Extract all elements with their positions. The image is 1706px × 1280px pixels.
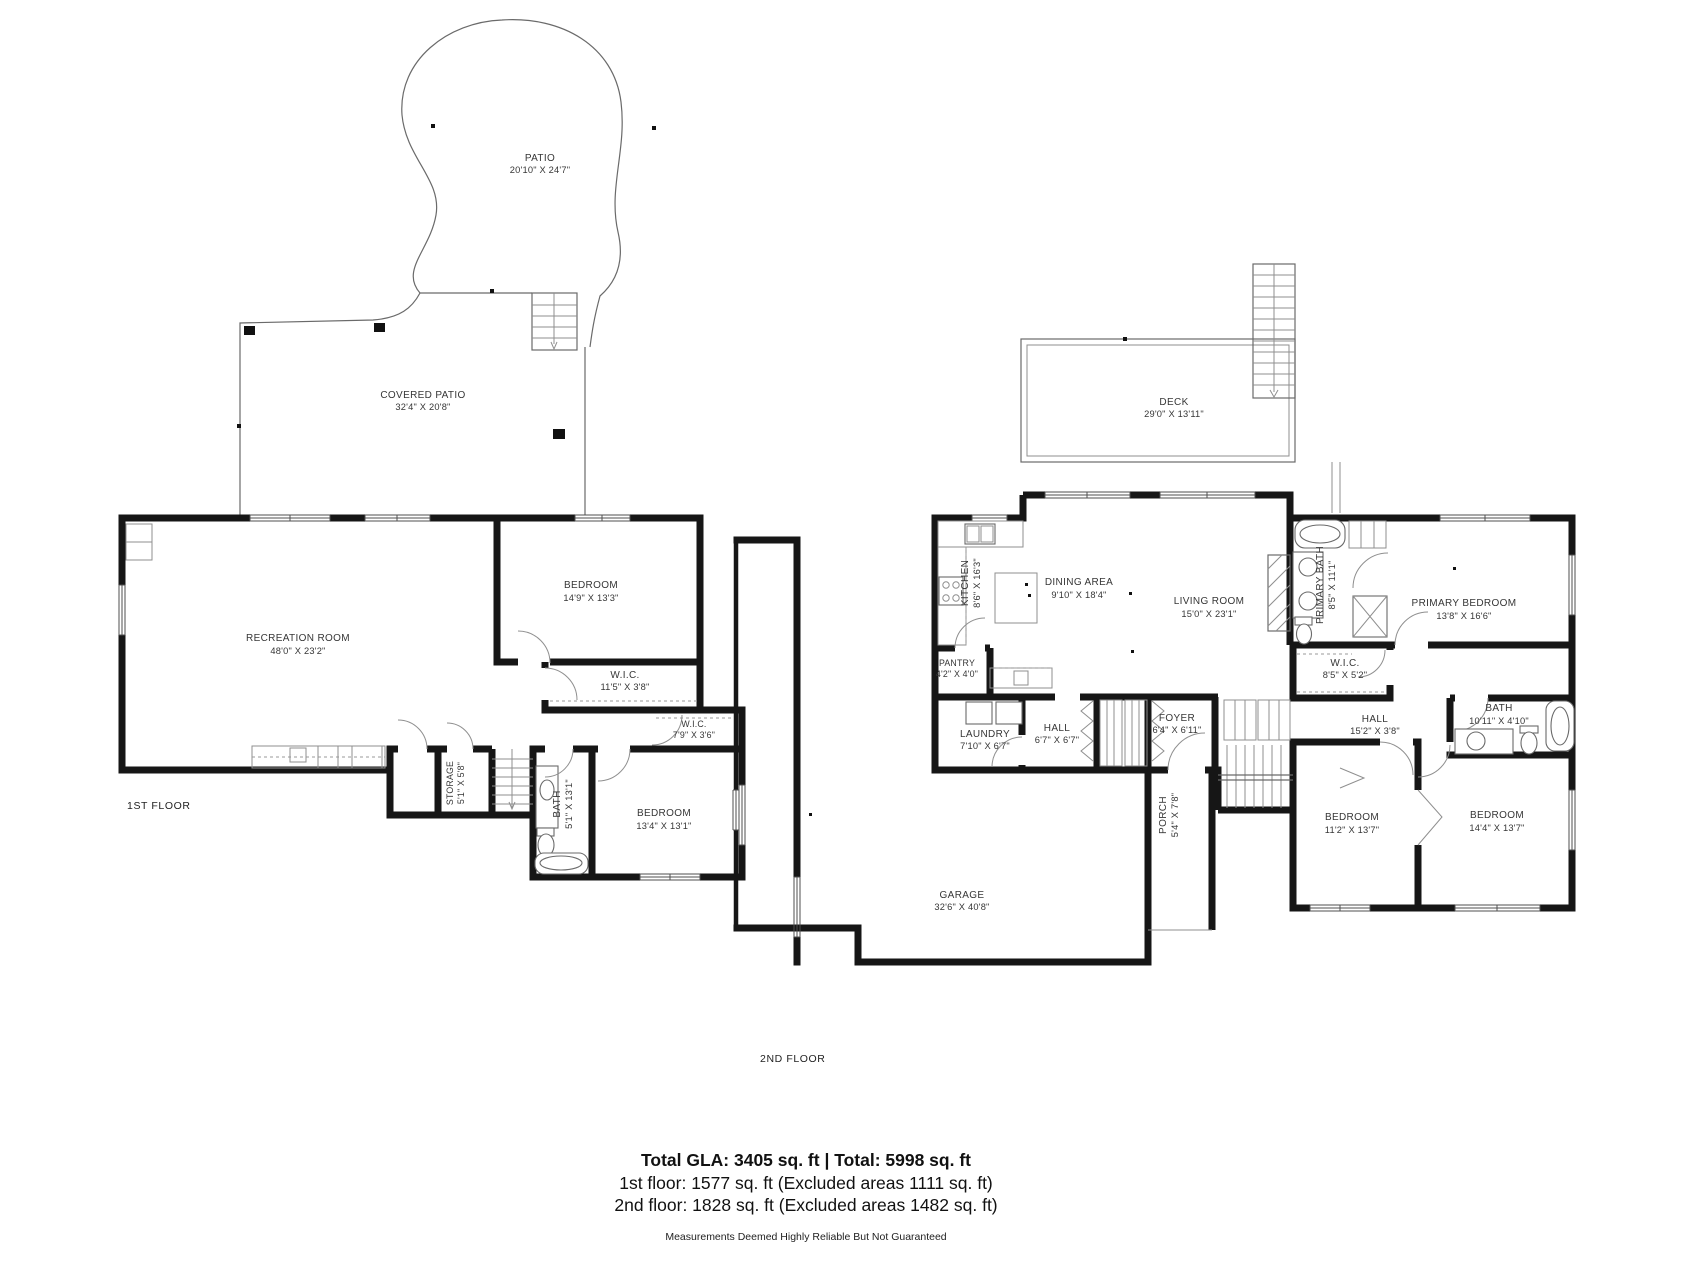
room-label-covered-patio: COVERED PATIO	[380, 390, 465, 401]
room-label-bedroom-b-f2: BEDROOM	[1470, 810, 1524, 821]
room-label-bath-f2: BATH	[1485, 703, 1512, 714]
svg-text:5'1" X 5'8": 5'1" X 5'8"	[456, 762, 466, 804]
svg-text:5'1" X 13'1": 5'1" X 13'1"	[564, 779, 574, 829]
room-dims-wic-b: 7'9" X 3'6"	[673, 730, 715, 740]
room-dims-wic-a: 11'5" X 3'8"	[600, 682, 649, 692]
room-dims-pantry: 4'2" X 4'0"	[936, 669, 978, 679]
room-dims-hall-a: 6'7" X 6'7"	[1035, 735, 1079, 745]
room-label-living: LIVING ROOM	[1174, 596, 1245, 607]
patio-stairs	[532, 293, 577, 350]
room-label-laundry: LAUNDRY	[960, 729, 1010, 740]
room-dims-bedroom-a: 14'9" X 13'3"	[563, 593, 618, 603]
room-dims-bedroom-b: 13'4" X 13'1"	[636, 821, 691, 831]
room-label-patio: PATIO	[525, 153, 555, 164]
room-label-bedroom-b: BEDROOM	[637, 808, 691, 819]
first-floor-plan: PATIO 20'10" X 24'7" COVERED PATIO 32'4"…	[119, 20, 746, 881]
second-floor-area-text: 2nd floor: 1828 sq. ft (Excluded areas 1…	[614, 1194, 997, 1217]
room-dims-recreation: 48'0" X 23'2"	[270, 646, 325, 656]
first-floor-labels: PATIO 20'10" X 24'7" COVERED PATIO 32'4"…	[127, 153, 715, 831]
room-dims-garage: 32'6" X 40'8"	[934, 902, 989, 912]
svg-text:PORCH: PORCH	[1158, 796, 1169, 834]
svg-text:5'4" X 7'8": 5'4" X 7'8"	[1170, 793, 1180, 837]
room-label-recreation: RECREATION ROOM	[246, 633, 350, 644]
floorplan-page: { "floors": { "f1": { "floor_label": "1S…	[0, 0, 1706, 1280]
room-label-pantry: PANTRY	[939, 658, 975, 668]
disclaimer-text: Measurements Deemed Highly Reliable But …	[614, 1231, 997, 1243]
patio-outline	[402, 20, 656, 347]
room-label-bedroom-a-f2: BEDROOM	[1325, 812, 1379, 823]
first-floor-area-text: 1st floor: 1577 sq. ft (Excluded areas 1…	[614, 1172, 997, 1195]
room-label-porch: PORCH 5'4" X 7'8"	[1158, 793, 1180, 837]
room-label-wic-b: W.I.C.	[681, 719, 706, 729]
room-dims-bath-f2: 10'11" X 4'10"	[1469, 716, 1529, 726]
room-label-primary-bath: PRIMARY BATH 8'5" X 11'1"	[1315, 546, 1337, 624]
room-dims-primary-bedroom: 13'8" X 16'6"	[1436, 611, 1491, 621]
svg-text:PRIMARY BATH: PRIMARY BATH	[1315, 546, 1326, 624]
svg-text:STORAGE: STORAGE	[445, 761, 455, 805]
total-gla-text: Total GLA: 3405 sq. ft | Total: 5998 sq.…	[614, 1149, 997, 1172]
room-dims-living: 15'0" X 23'1"	[1181, 609, 1236, 619]
room-dims-bedroom-a-f2: 11'2" X 13'7"	[1325, 825, 1379, 835]
room-label-kitchen: KITCHEN 8'6" X 16'3"	[960, 558, 982, 608]
room-dims-patio: 20'10" X 24'7"	[510, 165, 571, 175]
room-dims-hall-b: 15'2" X 3'8"	[1350, 726, 1400, 736]
second-floor-plan: DECK 29'0" X 13'11" KITCHEN 8'6" X 16'3"…	[733, 264, 1576, 1065]
room-dims-covered-patio: 32'4" X 20'8"	[395, 402, 450, 412]
summary-footer: Total GLA: 3405 sq. ft | Total: 5998 sq.…	[614, 1149, 997, 1243]
svg-text:8'6" X 16'3": 8'6" X 16'3"	[972, 558, 982, 608]
room-dims-deck: 29'0" X 13'11"	[1144, 409, 1204, 419]
room-label-bedroom-a: BEDROOM	[564, 580, 618, 591]
svg-text:BATH: BATH	[552, 790, 563, 817]
room-dims-foyer: 6'4" X 6'11"	[1152, 725, 1201, 735]
floorplan-canvas: PATIO 20'10" X 24'7" COVERED PATIO 32'4"…	[0, 0, 1706, 1280]
deck-outline	[1021, 264, 1340, 513]
room-label-foyer: FOYER	[1159, 713, 1195, 724]
room-dims-bedroom-b-f2: 14'4" X 13'7"	[1469, 823, 1524, 833]
room-dims-laundry: 7'10" X 6'7"	[960, 741, 1010, 751]
room-label-primary-bedroom: PRIMARY BEDROOM	[1412, 598, 1517, 609]
room-label-hall-a: HALL	[1044, 723, 1071, 734]
room-label-deck: DECK	[1159, 397, 1188, 408]
second-floor-title: 2ND FLOOR	[760, 1053, 826, 1065]
room-label-storage: STORAGE 5'1" X 5'8"	[445, 761, 466, 805]
room-label-hall-b: HALL	[1362, 714, 1389, 725]
first-floor-title: 1ST FLOOR	[127, 800, 191, 812]
room-label-wic-a: W.I.C.	[610, 670, 639, 681]
svg-text:8'5" X 11'1": 8'5" X 11'1"	[1327, 560, 1337, 609]
room-dims-dining: 9'10" X 18'4"	[1051, 590, 1106, 600]
room-label-garage: GARAGE	[940, 890, 985, 901]
room-dims-wic: 8'5" X 5'2"	[1323, 670, 1367, 680]
svg-text:KITCHEN: KITCHEN	[960, 560, 971, 606]
room-label-wic: W.I.C.	[1330, 658, 1359, 669]
room-label-dining: DINING AREA	[1045, 577, 1113, 588]
